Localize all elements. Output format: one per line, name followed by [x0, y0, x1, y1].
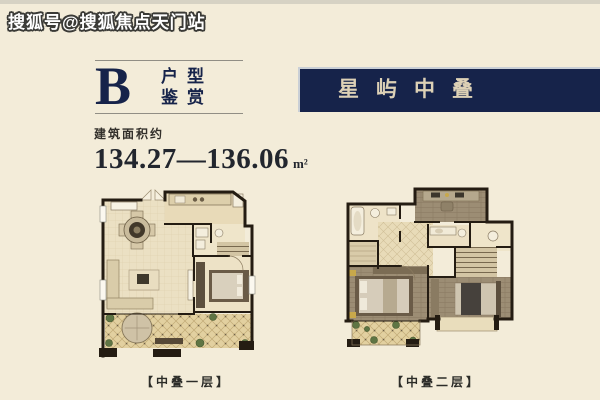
project-banner: 星屿中叠 — [298, 67, 600, 112]
unit-type-letter: B — [95, 59, 131, 113]
unit-type-label-bottom: 鉴赏 — [161, 87, 213, 108]
top-strip — [0, 0, 600, 4]
unit-type-labels: 户型 鉴赏 — [161, 66, 213, 108]
banner-title: 星屿中叠 — [338, 69, 490, 110]
unit-type-block: B 户型 鉴赏 — [95, 58, 243, 116]
floorplan-level1-label: 【中叠一层】 — [96, 373, 276, 390]
floorplan-level1-drawing — [95, 186, 270, 366]
area-value: 134.27—136.06 — [94, 143, 289, 176]
area-label: 建筑面积约 — [94, 125, 308, 142]
area-unit: m² — [293, 156, 308, 172]
unit-type-label-top: 户型 — [161, 66, 213, 87]
floorplan-level2-label: 【中叠二层】 — [346, 373, 526, 390]
divider-bottom — [95, 113, 243, 114]
watermark-text: 搜狐号@搜狐焦点天门站 — [8, 8, 206, 33]
floorplan-level2-drawing — [343, 182, 518, 352]
area-section: 建筑面积约 134.27—136.06 m² — [94, 125, 308, 176]
